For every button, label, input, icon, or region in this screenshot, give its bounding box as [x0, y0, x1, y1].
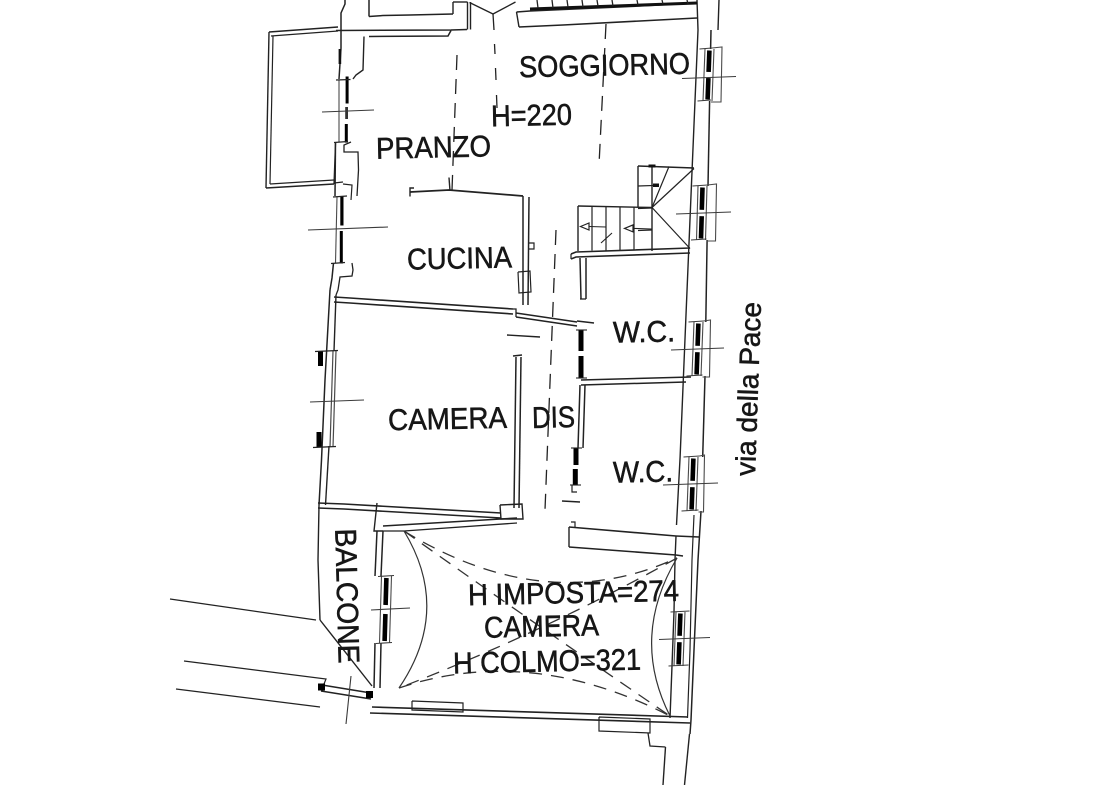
svg-text:PRANZO: PRANZO — [376, 130, 492, 165]
svg-text:SOGGIORNO: SOGGIORNO — [519, 48, 691, 85]
svg-text:BALCONE: BALCONE — [328, 528, 365, 664]
svg-text:W.C.: W.C. — [613, 315, 676, 349]
svg-text:H IMPOSTA=274: H IMPOSTA=274 — [468, 575, 680, 612]
svg-text:CAMERA: CAMERA — [484, 609, 600, 644]
svg-text:H=220: H=220 — [491, 99, 573, 134]
svg-text:W.C.: W.C. — [613, 455, 674, 489]
svg-text:DIS: DIS — [532, 401, 576, 435]
svg-text:CAMERA: CAMERA — [388, 402, 508, 437]
svg-text:H COLMO=321: H COLMO=321 — [453, 644, 642, 681]
svg-text:via della Pace: via della Pace — [730, 301, 767, 476]
svg-text:CUCINA: CUCINA — [407, 241, 513, 276]
